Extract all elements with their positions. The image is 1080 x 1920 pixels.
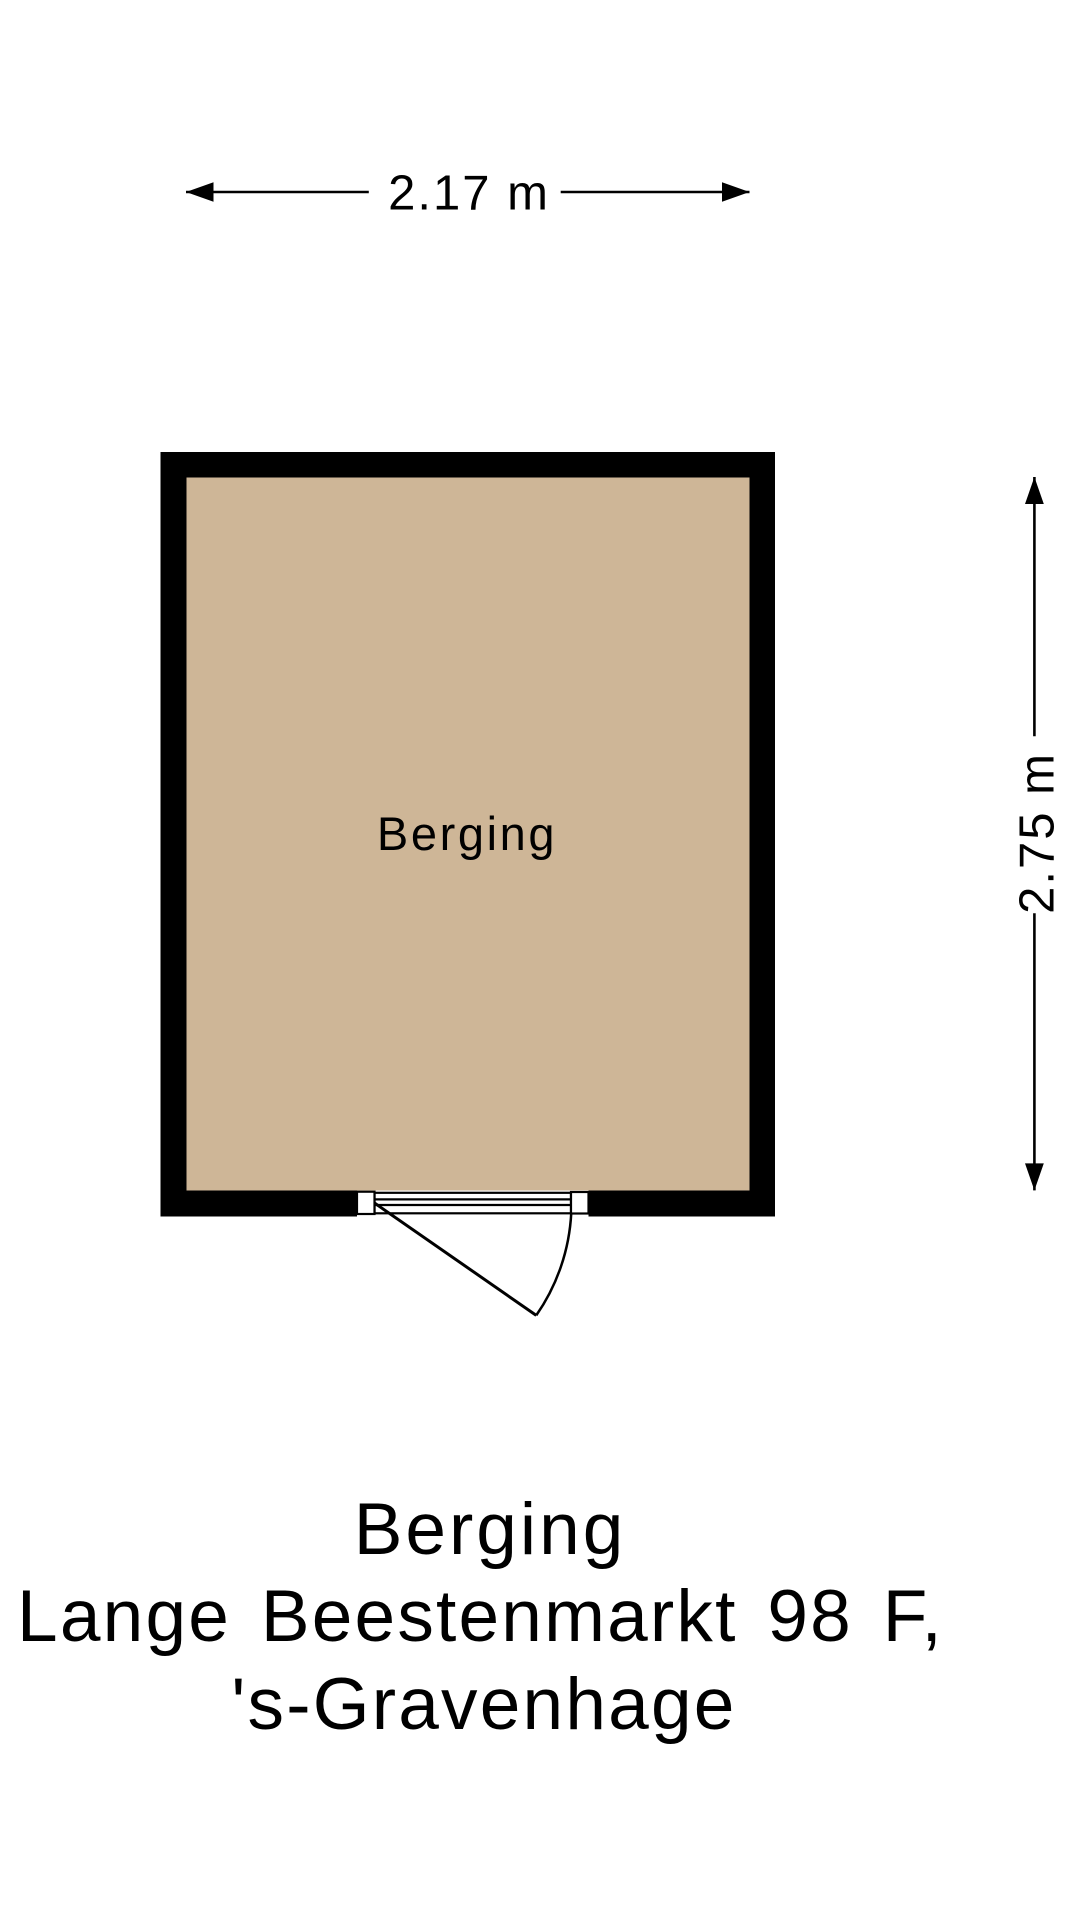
svg-text:'s-Gravenhage: 's-Gravenhage: [231, 1664, 736, 1745]
svg-text:2.75 m: 2.75 m: [1011, 752, 1065, 914]
svg-text:Berging: Berging: [354, 1489, 627, 1570]
svg-text:Berging: Berging: [377, 807, 557, 860]
svg-text:2.17 m: 2.17 m: [388, 167, 550, 221]
svg-text:Lange Beestenmarkt 98 F,: Lange Beestenmarkt 98 F,: [17, 1576, 944, 1657]
